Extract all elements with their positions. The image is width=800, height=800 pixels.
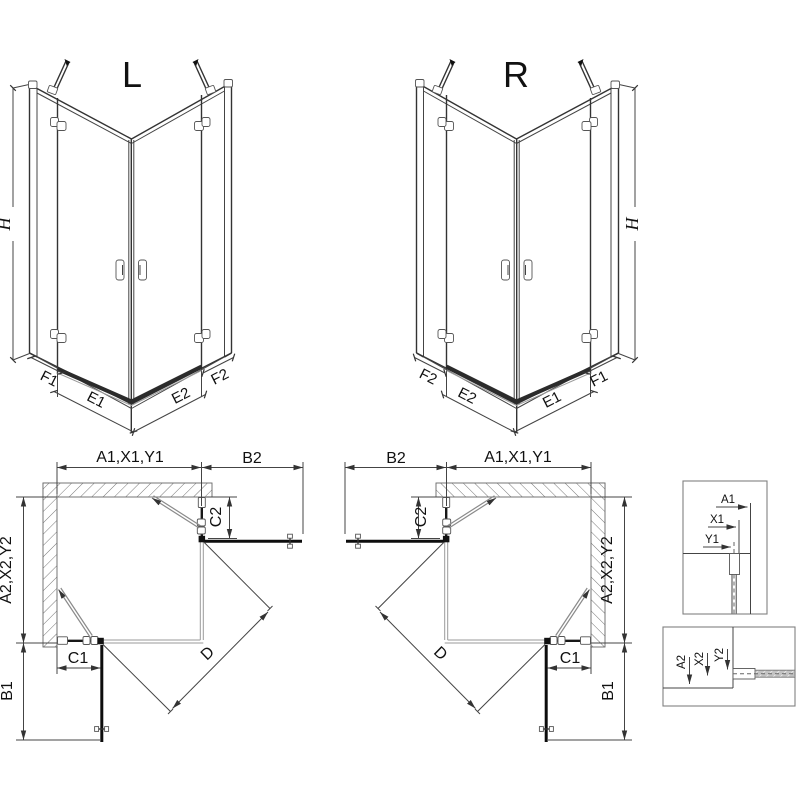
c2-label: C2 bbox=[413, 507, 430, 528]
open-door-b2 bbox=[204, 534, 302, 548]
b2-label: B2 bbox=[242, 450, 262, 467]
a2-x2-y2-label: A2,X2,Y2 bbox=[599, 536, 616, 604]
height-label: H bbox=[0, 217, 14, 232]
plan-view-geometry bbox=[16, 462, 303, 742]
c1-label: C1 bbox=[68, 650, 89, 667]
variant-right-label: R bbox=[503, 54, 529, 95]
c2-label: C2 bbox=[208, 507, 225, 528]
side-dimensions bbox=[16, 497, 100, 740]
closed-door-outline bbox=[103, 541, 203, 643]
side-fixed-panel bbox=[29, 81, 38, 357]
open-door-b1 bbox=[95, 645, 109, 742]
shower-enclosure-technical-drawing: A1 X1 Y1 A2 X2 Y2 L H F1 E1 E2 F2 R H F2… bbox=[0, 0, 800, 800]
a1-x1-y1-label: A1,X1,Y1 bbox=[96, 449, 164, 466]
iso-view-right-labels: R H F2 E2 E1 F1 bbox=[416, 54, 646, 412]
iso-view-left-labels: L H F1 E1 E2 F2 bbox=[0, 54, 232, 412]
e2-label: E2 bbox=[169, 384, 193, 407]
b2-label: B2 bbox=[386, 450, 406, 467]
d-label: D bbox=[430, 644, 450, 664]
a2-x2-y2-label: A2,X2,Y2 bbox=[0, 536, 15, 604]
glass-walls bbox=[30, 80, 233, 433]
detail-a1-label: A1 bbox=[721, 494, 735, 506]
detail-x2-label: X2 bbox=[694, 652, 706, 666]
drawing-canvas: A1 X1 Y1 A2 X2 Y2 L H F1 E1 E2 F2 R H F2… bbox=[0, 0, 800, 800]
fixed-panel-c1 bbox=[57, 637, 104, 645]
detail-y2-label: Y2 bbox=[714, 648, 726, 662]
b1-label: B1 bbox=[600, 681, 617, 701]
detail-x1-label: X1 bbox=[710, 514, 724, 526]
hinge-icon bbox=[51, 118, 211, 343]
detail-box-bottom: A2 X2 Y2 bbox=[663, 627, 795, 706]
variant-left-label: L bbox=[122, 54, 142, 95]
b1-label: B1 bbox=[0, 681, 16, 701]
plan-view-geometry-mirrored bbox=[345, 462, 632, 742]
detail-a2-label: A2 bbox=[676, 655, 688, 669]
detail-box-top: A1 X1 Y1 bbox=[683, 481, 767, 614]
top-dimensions bbox=[57, 462, 303, 534]
e2-label: E2 bbox=[455, 384, 479, 407]
detail-y1-label: Y1 bbox=[705, 534, 719, 546]
wall-hatching bbox=[43, 483, 212, 647]
a1-x1-y1-label: A1,X1,Y1 bbox=[484, 449, 552, 466]
height-label: H bbox=[622, 217, 642, 232]
door-swing-inward bbox=[59, 496, 201, 637]
d-label: D bbox=[198, 644, 218, 664]
c1-label: C1 bbox=[560, 650, 581, 667]
diagonal-dimension bbox=[103, 542, 273, 714]
